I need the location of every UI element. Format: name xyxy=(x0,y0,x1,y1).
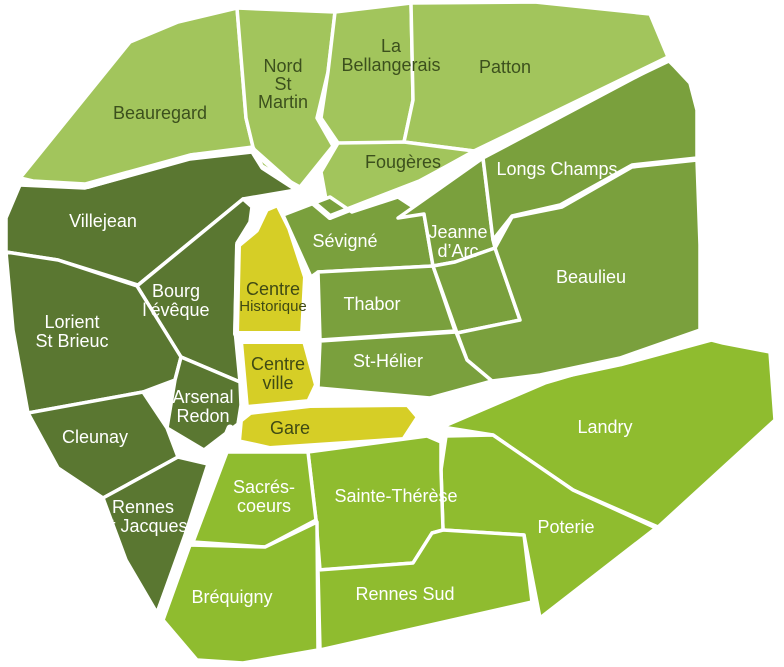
region-la-bellangerais[interactable] xyxy=(321,3,413,148)
rennes-districts-map: BeauregardNordStMartinLaBellangeraisPatt… xyxy=(0,0,784,667)
map-canvas: BeauregardNordStMartinLaBellangeraisPatt… xyxy=(0,0,784,667)
region-centre-ville[interactable] xyxy=(240,341,317,408)
region-thabor[interactable] xyxy=(318,266,455,340)
